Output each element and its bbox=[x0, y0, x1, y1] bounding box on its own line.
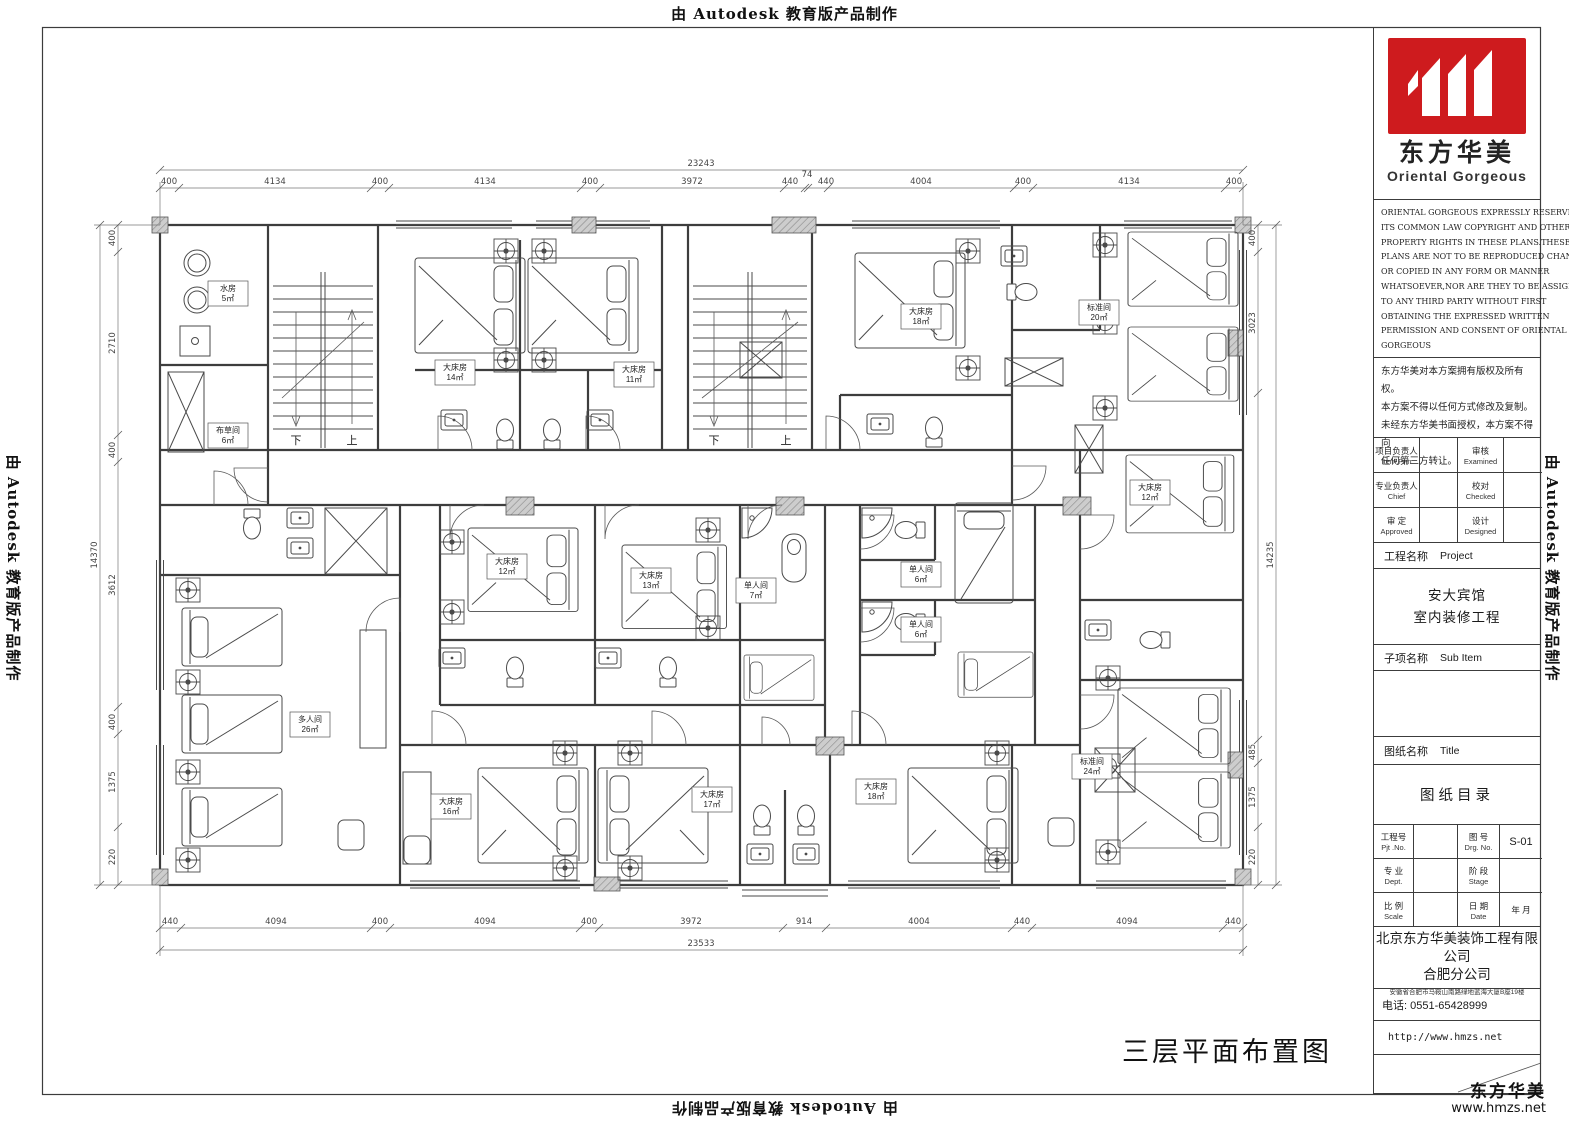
svg-text:6㎡: 6㎡ bbox=[915, 630, 927, 639]
svg-text:4094: 4094 bbox=[265, 917, 287, 927]
dim-total-top: 23243 bbox=[687, 159, 714, 169]
room-label: 多人间26㎡ bbox=[290, 712, 330, 737]
signoff-value-cell bbox=[1504, 473, 1542, 508]
stair-up-label: 上 bbox=[781, 434, 792, 447]
project-name: 安大宾馆 室内装修工程 bbox=[1374, 569, 1540, 645]
svg-text:多人间: 多人间 bbox=[298, 714, 322, 724]
signoff-value-cell bbox=[1504, 438, 1542, 473]
svg-text:18㎡: 18㎡ bbox=[868, 792, 885, 801]
svg-text:400: 400 bbox=[1248, 230, 1258, 246]
svg-text:11㎡: 11㎡ bbox=[626, 375, 642, 384]
svg-text:4134: 4134 bbox=[1118, 177, 1140, 187]
svg-text:大床房: 大床房 bbox=[443, 362, 467, 372]
svg-text:17㎡: 17㎡ bbox=[704, 800, 721, 809]
svg-text:标准间: 标准间 bbox=[1080, 756, 1104, 766]
svg-text:大床房: 大床房 bbox=[622, 364, 646, 374]
dim-total-bottom: 23533 bbox=[687, 939, 714, 949]
svg-text:400: 400 bbox=[581, 917, 597, 927]
signoff-value-cell bbox=[1420, 473, 1458, 508]
svg-text:大床房: 大床房 bbox=[700, 789, 724, 799]
pjt-no-value bbox=[1414, 825, 1458, 859]
svg-text:单人间: 单人间 bbox=[744, 580, 768, 590]
staircase-west: 下 上 bbox=[273, 272, 373, 448]
company-name: 北京东方华美装饰工程有限公司 合肥分公司 安徽省合肥市马鞍山南路绿地蓝海大厦B座… bbox=[1374, 927, 1540, 989]
floor-plan-drawing: 下 上 下 上 bbox=[0, 0, 1569, 1124]
ceiling-fixtures bbox=[176, 233, 1120, 880]
bathroom-fixtures bbox=[244, 246, 1171, 864]
svg-text:400: 400 bbox=[372, 177, 388, 187]
room-label: 单人间6㎡ bbox=[901, 617, 941, 642]
svg-text:12㎡: 12㎡ bbox=[499, 567, 516, 576]
svg-text:大床房: 大床房 bbox=[909, 306, 933, 316]
footer-brand: 东方华美 www.hmzs.net bbox=[1446, 1083, 1546, 1116]
svg-text:4004: 4004 bbox=[910, 177, 932, 187]
drg-no-value: S-01 bbox=[1500, 825, 1542, 859]
footer-brand-name: 东方华美 bbox=[1446, 1083, 1546, 1102]
sheet-border bbox=[43, 28, 1541, 1095]
dim-total-right: 14235 bbox=[1266, 541, 1276, 568]
autodesk-watermark-right: 由 Autodesk 教育版产品制作 bbox=[1543, 418, 1563, 718]
brand-name-cn: 东方华美 bbox=[1374, 139, 1540, 168]
room-label: 大床房13㎡ bbox=[631, 568, 671, 593]
autodesk-watermark-bottom: 由 Autodesk 教育版产品制作 bbox=[0, 1098, 1569, 1119]
autodesk-watermark-left: 由 Autodesk 教育版产品制作 bbox=[4, 418, 24, 718]
room-label: 大床房11㎡ bbox=[614, 362, 654, 387]
svg-text:12㎡: 12㎡ bbox=[1142, 493, 1159, 502]
dept-value bbox=[1414, 859, 1458, 893]
room-label: 标准间24㎡ bbox=[1072, 754, 1112, 779]
signoff-value-cell bbox=[1420, 438, 1458, 473]
svg-text:5㎡: 5㎡ bbox=[222, 294, 234, 303]
svg-text:大床房: 大床房 bbox=[639, 570, 663, 580]
svg-text:3972: 3972 bbox=[681, 177, 703, 187]
signoff-table: 项目负责人Item.Prin 审核Examined 专业负责人Chief 校对C… bbox=[1374, 438, 1540, 543]
svg-text:24㎡: 24㎡ bbox=[1084, 767, 1101, 776]
svg-text:440: 440 bbox=[1225, 917, 1241, 927]
svg-text:大床房: 大床房 bbox=[439, 796, 463, 806]
room-label: 布草间6㎡ bbox=[208, 423, 248, 448]
svg-text:440: 440 bbox=[818, 177, 834, 187]
svg-text:大床房: 大床房 bbox=[1138, 482, 1162, 492]
svg-text:1375: 1375 bbox=[108, 771, 118, 793]
sheet-label-row: 图纸名称 Title bbox=[1374, 737, 1540, 765]
svg-text:485: 485 bbox=[1248, 744, 1258, 760]
stage-value bbox=[1500, 859, 1542, 893]
svg-text:440: 440 bbox=[1014, 917, 1030, 927]
staircase-center: 下 上 bbox=[693, 272, 807, 448]
title-block: 东方华美 Oriental Gorgeous ORIENTAL GORGEOUS… bbox=[1373, 27, 1541, 1094]
sheet-name: 图纸目录 bbox=[1374, 765, 1540, 825]
company-logo: 东方华美 Oriental Gorgeous bbox=[1374, 28, 1540, 200]
room-label: 单人间7㎡ bbox=[736, 578, 776, 603]
svg-text:400: 400 bbox=[108, 442, 118, 458]
signoff-value-cell bbox=[1504, 508, 1542, 543]
svg-text:6㎡: 6㎡ bbox=[222, 436, 234, 445]
svg-text:400: 400 bbox=[582, 177, 598, 187]
room-label: 标准间20㎡ bbox=[1079, 300, 1119, 325]
svg-text:4094: 4094 bbox=[474, 917, 496, 927]
autodesk-watermark-top: 由 Autodesk 教育版产品制作 bbox=[0, 3, 1569, 24]
project-label-row: 工程名称 Project bbox=[1374, 543, 1540, 569]
svg-text:标准间: 标准间 bbox=[1087, 302, 1111, 312]
drawing-caption: 三层平面布置图 bbox=[1122, 1030, 1332, 1069]
svg-text:14㎡: 14㎡ bbox=[447, 373, 464, 382]
stair-down-label: 下 bbox=[291, 435, 302, 447]
room-label: 大床房12㎡ bbox=[487, 554, 527, 579]
scale-value bbox=[1414, 893, 1458, 927]
svg-text:3972: 3972 bbox=[680, 917, 702, 927]
company-website: http://www.hmzs.net bbox=[1374, 1021, 1540, 1055]
room-label: 大床房14㎡ bbox=[435, 360, 475, 385]
brand-name-en: Oriental Gorgeous bbox=[1374, 168, 1540, 184]
copyright-english: ORIENTAL GORGEOUS EXPRESSLY RESERVES ITS… bbox=[1374, 200, 1540, 358]
stair-down-label: 下 bbox=[709, 435, 720, 447]
room-label: 单人间6㎡ bbox=[901, 562, 941, 587]
svg-text:18㎡: 18㎡ bbox=[913, 317, 930, 326]
svg-text:4004: 4004 bbox=[908, 917, 930, 927]
room-label: 水房5㎡ bbox=[208, 281, 248, 306]
svg-text:4134: 4134 bbox=[474, 177, 496, 187]
svg-text:16㎡: 16㎡ bbox=[443, 807, 460, 816]
svg-text:4134: 4134 bbox=[264, 177, 286, 187]
subitem-label-row: 子项名称 Sub Item bbox=[1374, 645, 1540, 671]
svg-text:400: 400 bbox=[1015, 177, 1031, 187]
oriental-gorgeous-logo-icon bbox=[1388, 38, 1526, 134]
svg-text:2710: 2710 bbox=[108, 332, 118, 354]
room-label: 大床房18㎡ bbox=[901, 304, 941, 329]
svg-text:3612: 3612 bbox=[108, 574, 118, 596]
svg-text:20㎡: 20㎡ bbox=[1091, 313, 1108, 322]
company-phone: 电话: 0551-65428999 bbox=[1374, 989, 1540, 1021]
dim-total-left: 14370 bbox=[90, 541, 100, 568]
svg-text:914: 914 bbox=[796, 917, 812, 927]
svg-text:220: 220 bbox=[1248, 849, 1258, 865]
svg-text:水房: 水房 bbox=[220, 283, 236, 293]
svg-text:单人间: 单人间 bbox=[909, 619, 933, 629]
svg-text:26㎡: 26㎡ bbox=[302, 725, 319, 734]
footer-brand-url: www.hmzs.net bbox=[1446, 1102, 1546, 1116]
room-label: 大床房17㎡ bbox=[692, 787, 732, 812]
room-label: 大床房16㎡ bbox=[431, 794, 471, 819]
room-label: 大床房18㎡ bbox=[856, 779, 896, 804]
svg-text:3023: 3023 bbox=[1248, 312, 1258, 334]
stair-up-label: 上 bbox=[347, 434, 358, 447]
svg-text:大床房: 大床房 bbox=[495, 556, 519, 566]
svg-text:400: 400 bbox=[108, 230, 118, 246]
svg-text:400: 400 bbox=[1226, 177, 1242, 187]
svg-text:布草间: 布草间 bbox=[216, 425, 240, 435]
svg-text:400: 400 bbox=[108, 714, 118, 730]
svg-text:440: 440 bbox=[782, 177, 798, 187]
svg-text:220: 220 bbox=[108, 849, 118, 865]
svg-text:单人间: 单人间 bbox=[909, 564, 933, 574]
svg-text:7㎡: 7㎡ bbox=[750, 591, 762, 600]
svg-text:400: 400 bbox=[372, 917, 388, 927]
svg-text:4094: 4094 bbox=[1116, 917, 1138, 927]
subitem-value bbox=[1374, 671, 1540, 737]
svg-text:13㎡: 13㎡ bbox=[643, 581, 660, 590]
svg-text:440: 440 bbox=[162, 917, 178, 927]
svg-text:1375: 1375 bbox=[1248, 786, 1258, 808]
svg-text:大床房: 大床房 bbox=[864, 781, 888, 791]
svg-text:400: 400 bbox=[161, 177, 177, 187]
signoff-value-cell bbox=[1420, 508, 1458, 543]
copyright-chinese: 东方华美对本方案拥有版权及所有权。 本方案不得以任何方式修改及复制。 未经东方华… bbox=[1374, 358, 1540, 438]
room-label: 大床房12㎡ bbox=[1130, 480, 1170, 505]
number-table: 工程号Pjt .No. 图 号Drg. No. S-01 专 业Dept. 阶 … bbox=[1374, 825, 1540, 927]
date-value: 年 月 bbox=[1500, 893, 1542, 927]
svg-text:74: 74 bbox=[802, 170, 813, 180]
svg-text:6㎡: 6㎡ bbox=[915, 575, 927, 584]
